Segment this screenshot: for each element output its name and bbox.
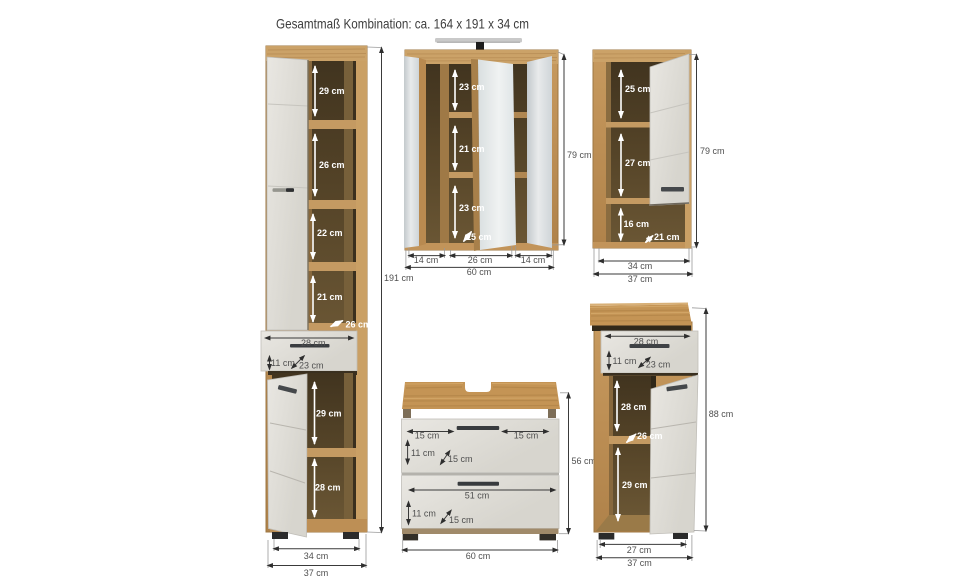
svg-text:27 cm: 27 cm [625, 158, 651, 168]
svg-text:21 cm: 21 cm [654, 232, 680, 242]
svg-text:51 cm: 51 cm [465, 491, 490, 501]
svg-text:88 cm: 88 cm [709, 409, 734, 419]
svg-text:37 cm: 37 cm [627, 558, 652, 568]
svg-text:37 cm: 37 cm [304, 568, 329, 578]
svg-text:28 cm: 28 cm [315, 483, 341, 493]
svg-text:28 cm: 28 cm [301, 338, 326, 348]
svg-text:191 cm: 191 cm [384, 273, 414, 283]
svg-text:11 cm: 11 cm [271, 358, 295, 368]
svg-text:34 cm: 34 cm [304, 551, 329, 561]
svg-text:56 cm: 56 cm [572, 456, 597, 466]
svg-text:27 cm: 27 cm [627, 545, 652, 555]
svg-text:25 cm: 25 cm [625, 84, 651, 94]
svg-text:60 cm: 60 cm [467, 267, 492, 277]
svg-text:28 cm: 28 cm [634, 337, 659, 347]
svg-text:21 cm: 21 cm [317, 292, 343, 302]
svg-text:29 cm: 29 cm [622, 480, 648, 490]
svg-text:23 cm: 23 cm [459, 82, 485, 92]
svg-text:Gesamtmaß Kombination: ca. 164: Gesamtmaß Kombination: ca. 164 x 191 x 3… [276, 16, 529, 32]
svg-text:60 cm: 60 cm [466, 551, 491, 561]
svg-text:15 cm: 15 cm [449, 515, 474, 525]
svg-text:37 cm: 37 cm [628, 274, 653, 284]
svg-text:11 cm: 11 cm [613, 356, 637, 366]
svg-text:14 cm: 14 cm [521, 255, 546, 265]
svg-text:23 cm: 23 cm [646, 360, 671, 370]
svg-text:26 cm: 26 cm [346, 320, 372, 330]
svg-text:28 cm: 28 cm [621, 402, 647, 412]
svg-text:15 cm: 15 cm [415, 431, 440, 441]
svg-text:26 cm: 26 cm [637, 431, 663, 441]
svg-text:26 cm: 26 cm [468, 255, 493, 265]
svg-text:23 cm: 23 cm [459, 203, 485, 213]
svg-text:15 cm: 15 cm [466, 232, 492, 242]
svg-text:21 cm: 21 cm [459, 144, 485, 154]
svg-text:23 cm: 23 cm [299, 361, 324, 371]
svg-text:79 cm: 79 cm [700, 146, 725, 156]
svg-text:16 cm: 16 cm [624, 219, 650, 229]
svg-text:29 cm: 29 cm [316, 409, 342, 419]
svg-text:14 cm: 14 cm [414, 255, 439, 265]
svg-text:26 cm: 26 cm [319, 160, 345, 170]
svg-text:15 cm: 15 cm [448, 454, 473, 464]
svg-text:11 cm: 11 cm [411, 448, 435, 458]
svg-text:34 cm: 34 cm [628, 261, 653, 271]
svg-text:15 cm: 15 cm [514, 431, 539, 441]
svg-text:79 cm: 79 cm [567, 150, 592, 160]
svg-text:11 cm: 11 cm [412, 509, 436, 519]
svg-text:22 cm: 22 cm [317, 228, 343, 238]
svg-text:29 cm: 29 cm [319, 86, 345, 96]
